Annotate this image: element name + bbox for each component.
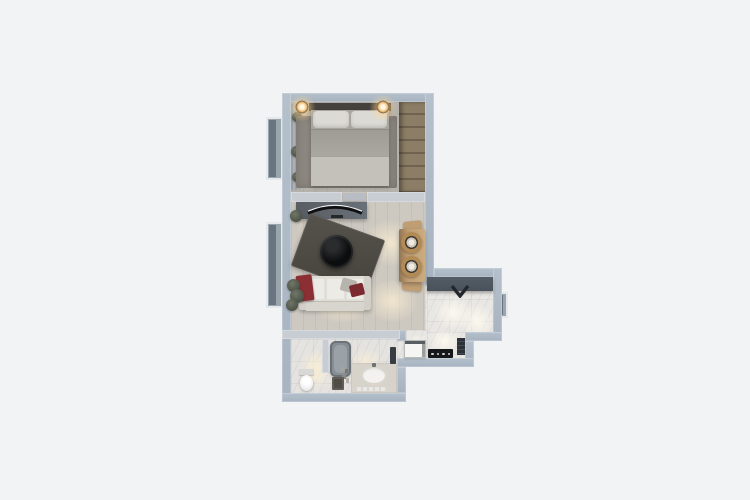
bed-pillow-left	[313, 111, 349, 128]
living-plant	[290, 210, 302, 222]
cooktop-knob-icon	[431, 353, 434, 356]
wall-bathroom-divider	[282, 330, 400, 339]
wall-kitchen-step-horizontal	[465, 332, 502, 341]
coffee-table	[320, 235, 353, 268]
bedside-lamp-right-icon	[376, 100, 390, 114]
double-bed	[311, 110, 389, 185]
toilet	[300, 375, 313, 391]
tv-stand	[331, 215, 343, 218]
bath-mat	[332, 377, 344, 390]
dining-chair-seat-bottom	[401, 256, 422, 277]
cooktop-knob-icon	[437, 353, 440, 356]
bedroom-window	[266, 117, 283, 180]
bed-blanket	[311, 156, 389, 186]
kitchen-radiator	[457, 338, 465, 355]
oval-basin	[361, 366, 387, 385]
cooktop-knob-icon	[442, 353, 445, 356]
wall-right-upper	[425, 93, 434, 285]
sofa	[299, 276, 371, 310]
bedroom-window-slat-icon	[269, 120, 276, 177]
wall-kitchen-right	[493, 268, 502, 341]
dining-chair-seat-top	[401, 232, 422, 253]
bedside-lamp-left-icon	[295, 100, 309, 114]
cooktop-knob-icon	[448, 353, 451, 356]
sofa-armrest-right	[364, 276, 371, 310]
towel	[357, 387, 387, 391]
wall-bathroom-right-lower	[397, 367, 406, 393]
floor-plan-render	[0, 0, 750, 500]
vanity-counter	[351, 363, 397, 393]
wall-hall-bottom	[397, 358, 474, 367]
living-window-slat-icon	[269, 225, 276, 305]
towel-rail	[390, 347, 396, 364]
living-window	[266, 222, 283, 308]
toiletry-item	[346, 378, 349, 383]
wall-bathroom-partition	[322, 339, 329, 373]
washing-machine	[404, 340, 426, 358]
toiletry-item	[345, 369, 348, 373]
wall-kitchen-top	[434, 268, 502, 277]
wardrobe	[399, 102, 425, 192]
toiletry-item	[341, 367, 344, 371]
wall-bathroom-bottom	[282, 393, 406, 402]
cooktop	[428, 349, 453, 358]
wall-bedroom-divider-right	[367, 192, 425, 202]
kitchen-light-pool	[453, 297, 493, 332]
basin-faucet-icon	[372, 363, 376, 367]
living-plant	[286, 299, 298, 311]
wall-left	[282, 93, 291, 402]
sofa-backrest	[306, 301, 364, 311]
washing-machine-edge	[422, 344, 425, 357]
wall-faucet-icon	[449, 284, 471, 298]
